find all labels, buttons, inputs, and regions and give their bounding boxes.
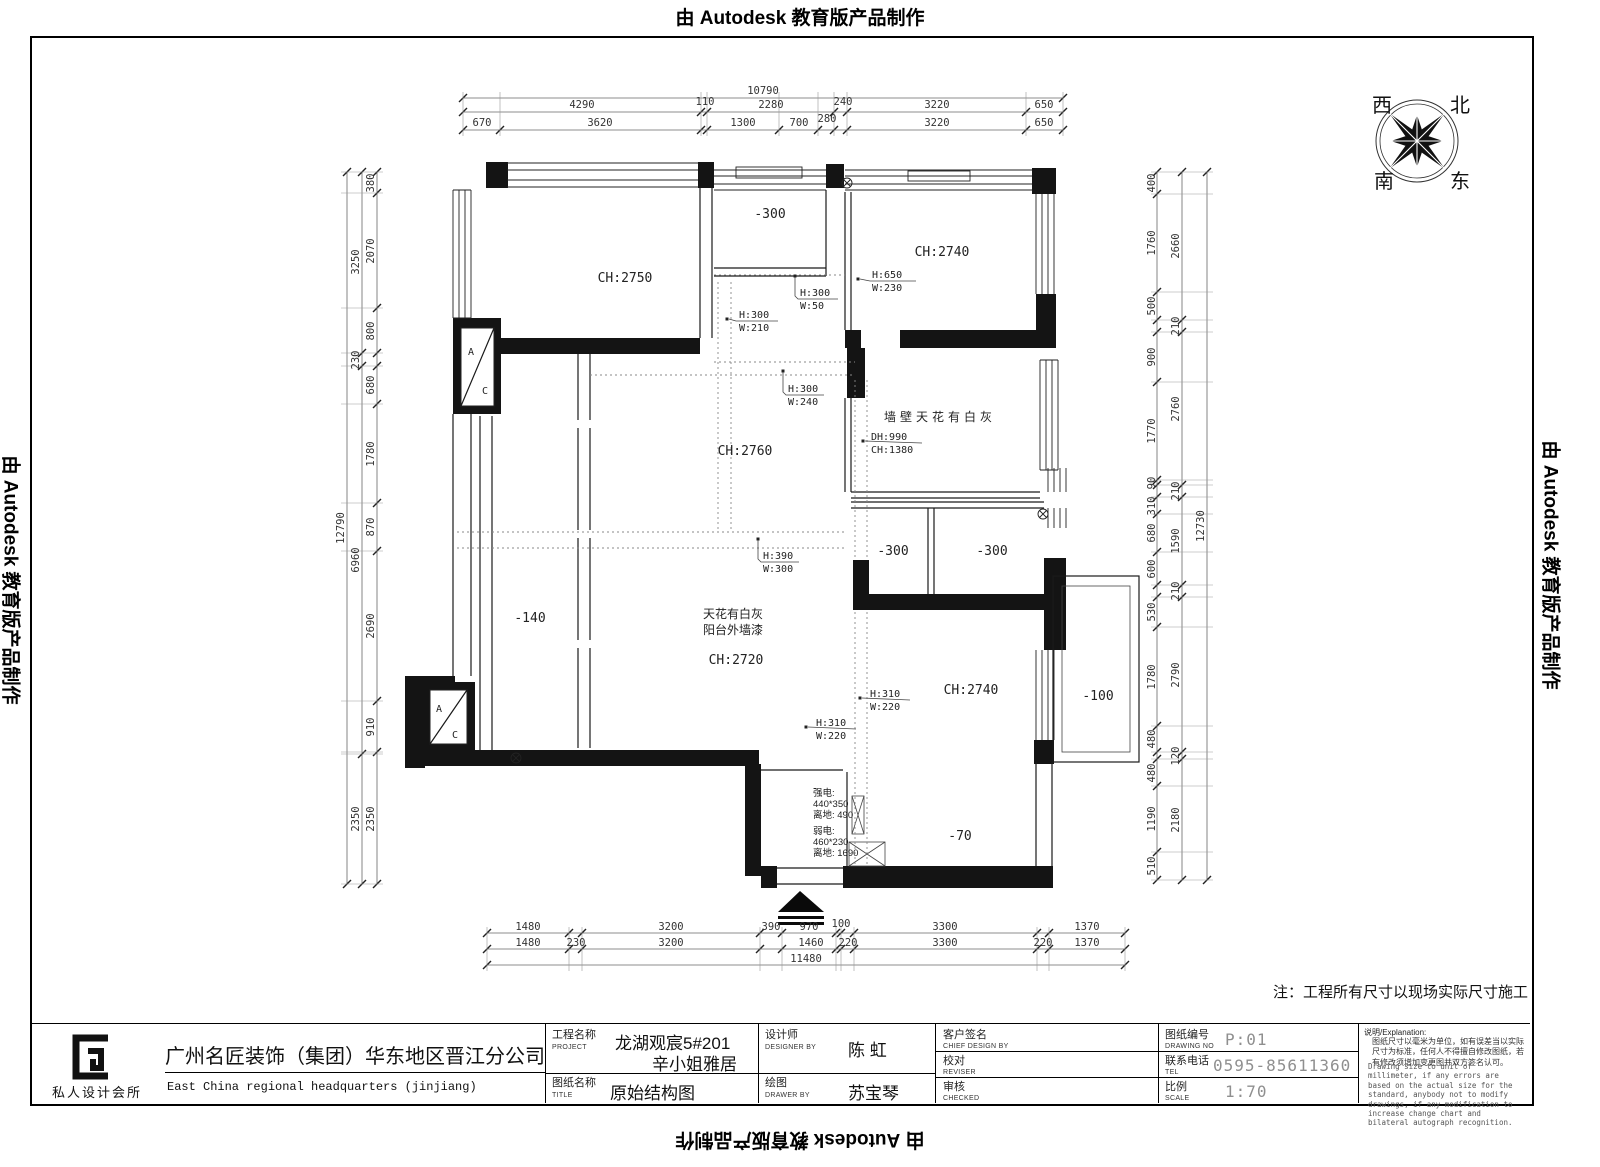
scale-value: 1:70 — [1225, 1082, 1268, 1101]
dim-label: 1590 — [1170, 528, 1182, 553]
anno: 440*350 — [813, 799, 848, 810]
dim-label: 10790 — [747, 85, 779, 97]
compass-west: 西 — [1372, 95, 1392, 117]
project-label-en: PROJECT — [552, 1044, 587, 1051]
dim-label: 220 — [1034, 937, 1053, 949]
scale-label: 比例 — [1165, 1082, 1187, 1093]
tel-label-en: TEL — [1165, 1069, 1179, 1076]
dim-label: 3200 — [658, 921, 683, 933]
room-finish-note: 墙壁天花有白灰 — [884, 409, 996, 424]
dim-label: 1190 — [1146, 806, 1158, 831]
tel-label: 联系电话 — [1165, 1056, 1209, 1067]
room-ceiling-height: CH:2760 — [718, 444, 773, 459]
dim-label: 1370 — [1074, 921, 1099, 933]
dim-label: 480 — [1146, 764, 1158, 783]
room-ceiling-height: CH:2750 — [598, 271, 653, 286]
room-ceiling-height: CH:2740 — [915, 245, 970, 260]
tb-rowline — [935, 1077, 1358, 1078]
dim-label: 900 — [1146, 348, 1158, 367]
tb-divider — [1358, 1024, 1359, 1103]
anno: 离地: 490 — [813, 809, 853, 821]
anno: DH:990 — [871, 432, 907, 443]
compass-south: 南 — [1374, 170, 1394, 193]
anno: W:230 — [872, 283, 902, 294]
dim-label: 480 — [1146, 730, 1158, 749]
tb-rowline — [935, 1051, 1358, 1052]
room-level: -100 — [1082, 689, 1113, 704]
anno: 460*230 — [813, 837, 848, 848]
anno: W:210 — [739, 323, 769, 334]
room-finish-note: 天花有白灰 — [703, 606, 763, 621]
dim-label: 2350 — [350, 806, 362, 831]
room-level: -70 — [948, 829, 971, 844]
checker-label-en: CHECKED — [943, 1095, 979, 1102]
company-logo — [68, 1032, 114, 1082]
tel-value: 0595-85611360 — [1213, 1056, 1351, 1075]
dim-label: 1480 — [515, 921, 540, 933]
dim-label: 310 — [1146, 497, 1158, 516]
structural-walls — [405, 162, 1066, 888]
designer-label-en: DESIGNER BY — [765, 1044, 816, 1051]
dim-label: 90 — [1146, 477, 1158, 490]
dim-label: 650 — [1035, 117, 1054, 129]
dim-label: 380 — [365, 174, 377, 193]
anno: 弱电: — [813, 825, 835, 837]
anno: H:300 — [739, 310, 769, 321]
scale-label-en: SCALE — [1165, 1095, 1189, 1102]
logo-caption: 私人设计会所 — [52, 1082, 142, 1101]
tb-divider — [545, 1024, 546, 1103]
anno: H:300 — [800, 288, 830, 299]
reviser-label-en: REVISER — [943, 1069, 976, 1076]
dim-label: 4290 — [569, 99, 594, 111]
project-name-line2: 辛小姐雅居 — [652, 1050, 737, 1075]
tb-divider — [1158, 1024, 1159, 1103]
dim-label: 2070 — [365, 238, 377, 263]
anno: CH:1380 — [871, 445, 913, 456]
ac-label-a: A — [468, 347, 474, 358]
dim-label: 1760 — [1146, 230, 1158, 255]
dim-label: 3250 — [350, 249, 362, 274]
dim-label: 1370 — [1074, 937, 1099, 949]
room-ceiling-height: CH:2720 — [709, 653, 764, 668]
dim-label: 530 — [1146, 603, 1158, 622]
drawing-title-label: 图纸名称 — [552, 1078, 596, 1089]
drawing-no-label-en: DRAWING NO — [1165, 1043, 1214, 1050]
dim-label: 870 — [365, 518, 377, 537]
dim-label: 3220 — [924, 99, 949, 111]
anno: H:650 — [872, 270, 902, 281]
dim-label: 1300 — [730, 117, 755, 129]
room-level: -140 — [514, 611, 545, 626]
dim-label: 670 — [473, 117, 492, 129]
dim-label: 2350 — [365, 806, 377, 831]
anno: W:50 — [800, 301, 824, 312]
room-level: -300 — [877, 544, 908, 559]
anno: W:220 — [870, 702, 900, 713]
anno: W:220 — [816, 731, 846, 742]
dim-label: 230 — [350, 351, 362, 370]
dim-label: 910 — [365, 718, 377, 737]
room-level: -300 — [754, 207, 785, 222]
window-hatches — [453, 163, 1139, 762]
anno: 离地: 1690 — [813, 847, 858, 859]
dim-label: 1780 — [1146, 664, 1158, 689]
dim-label: 210 — [1170, 482, 1182, 501]
dim-label: 210 — [1170, 582, 1182, 601]
ac2-label-a: A — [436, 704, 442, 715]
dim-label: 1770 — [1146, 418, 1158, 443]
tb-rowline — [545, 1073, 935, 1074]
dim-label: 510 — [1146, 857, 1158, 876]
dim-label: 1480 — [515, 937, 540, 949]
drawer-label: 绘图 — [765, 1078, 787, 1089]
dim-label: 680 — [365, 376, 377, 395]
dim-label: 3220 — [924, 117, 949, 129]
company-name-en: East China regional headquarters (jinjia… — [167, 1080, 477, 1094]
drawing-no-label: 图纸编号 — [1165, 1030, 1209, 1041]
dim-label: 2660 — [1170, 233, 1182, 258]
dim-label: 650 — [1035, 99, 1054, 111]
dim-label: 11480 — [790, 953, 822, 965]
dim-label: 400 — [1146, 174, 1158, 193]
dim-label: 3300 — [932, 937, 957, 949]
room-ceiling-height: CH:2740 — [944, 683, 999, 698]
dim-label: 230 — [567, 937, 586, 949]
ac-label-c: C — [482, 386, 488, 397]
client-sign-label: 客户签名 — [943, 1030, 987, 1041]
floor-plan-svg: A C A C — [0, 0, 1600, 1167]
drawer-name: 苏宝琴 — [848, 1079, 899, 1104]
dim-label: 700 — [790, 117, 809, 129]
dim-label: 2760 — [1170, 396, 1182, 421]
project-label: 工程名称 — [552, 1030, 596, 1041]
anno: H:310 — [870, 689, 900, 700]
dim-label: 2790 — [1170, 662, 1182, 687]
dim-label: 680 — [1146, 524, 1158, 543]
dim-label: 210 — [1170, 317, 1182, 336]
dim-label: 100 — [832, 918, 851, 930]
anno: W:300 — [763, 564, 793, 575]
dim-label: 3300 — [932, 921, 957, 933]
anno: H:390 — [763, 551, 793, 562]
partition-walls: A C A C — [430, 188, 1052, 884]
dim-label: 3200 — [658, 937, 683, 949]
drawer-label-en: DRAWER BY — [765, 1092, 810, 1099]
anno: 强电: — [813, 787, 835, 799]
drawing-title: 原始结构图 — [610, 1079, 695, 1104]
dim-label: 220 — [839, 937, 858, 949]
drawing-no-value: P:01 — [1225, 1030, 1268, 1049]
compass-east: 东 — [1450, 170, 1470, 193]
dim-label: 390 — [762, 921, 781, 933]
remark-text-en: Drawing size to unit of millimeter, if a… — [1368, 1062, 1526, 1128]
compass-north: 北 — [1450, 94, 1470, 117]
client-sign-label-en: CHIEF DESIGN BY — [943, 1043, 1009, 1050]
compass-rose: 西 北 南 东 — [1372, 94, 1470, 193]
anno: H:310 — [816, 718, 846, 729]
dim-label: 1460 — [798, 937, 823, 949]
room-level: -300 — [976, 544, 1007, 559]
dim-label: 110 — [696, 96, 715, 108]
dimension-lines — [341, 92, 1213, 971]
dim-label: 2690 — [365, 613, 377, 638]
dim-label: 120 — [1170, 747, 1182, 766]
dim-label: 6960 — [350, 547, 362, 572]
dim-label: 500 — [1146, 297, 1158, 316]
anno: H:300 — [788, 384, 818, 395]
dim-label: 1780 — [365, 441, 377, 466]
designer-name: 陈 虹 — [848, 1036, 887, 1061]
reviser-label: 校对 — [943, 1056, 965, 1067]
room-finish-note: 阳台外墙漆 — [703, 622, 763, 637]
ac2-label-c: C — [452, 730, 458, 741]
dim-label: 2280 — [758, 99, 783, 111]
tb-divider — [758, 1024, 759, 1103]
dim-label: 600 — [1146, 560, 1158, 579]
dim-label: 240 — [834, 96, 853, 108]
drain-symbols — [511, 178, 1048, 763]
entry-arrow — [778, 891, 824, 925]
dashed-lines — [457, 275, 867, 864]
designer-label: 设计师 — [765, 1030, 798, 1041]
drawing-title-label-en: TITLE — [552, 1092, 573, 1099]
dim-label: 3620 — [587, 117, 612, 129]
dim-label: 280 — [818, 113, 837, 125]
tb-divider — [935, 1024, 936, 1103]
dim-label: 800 — [365, 322, 377, 341]
dim-label: 970 — [800, 921, 819, 933]
dim-label: 12790 — [335, 512, 347, 544]
dim-label: 2180 — [1170, 807, 1182, 832]
company-name-cn: 广州名匠装饰（集团）华东地区晋江分公司 — [165, 1040, 545, 1073]
dim-label: 12730 — [1195, 510, 1207, 542]
anno: W:240 — [788, 397, 818, 408]
checker-label: 审核 — [943, 1082, 965, 1093]
drawing-sheet: 由 Autodesk 教育版产品制作 由 Autodesk 教育版产品制作 由 … — [0, 0, 1600, 1167]
